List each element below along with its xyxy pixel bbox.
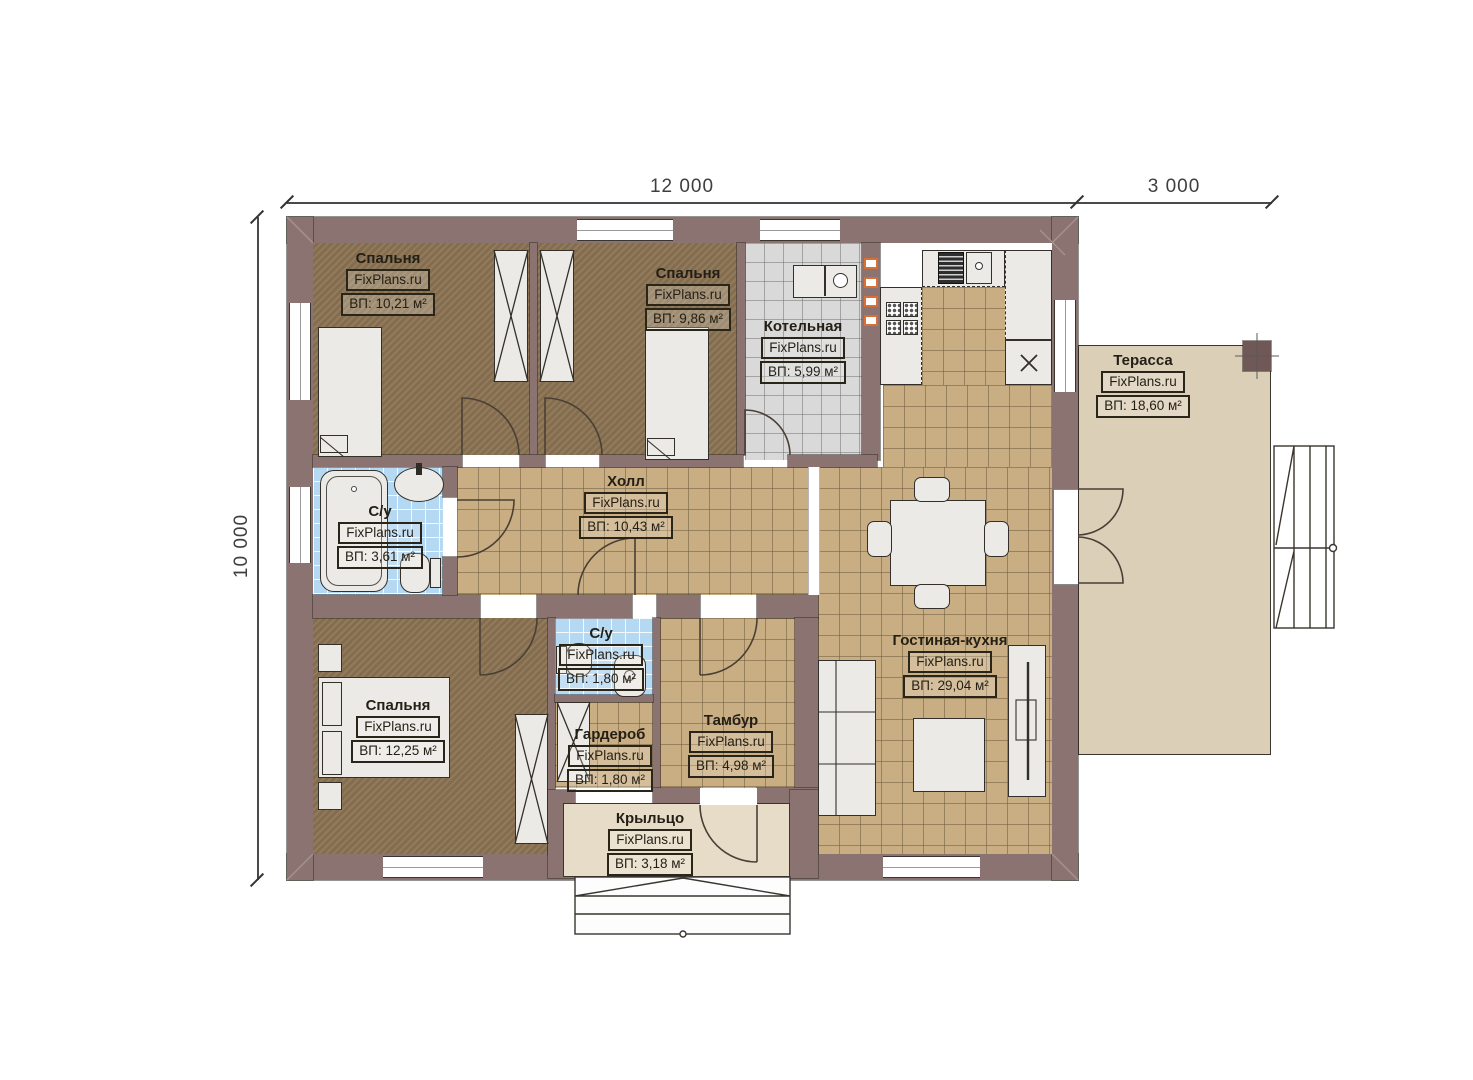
room-label-bedroom-3: Спальня FixPlans.ru ВП: 12,25 м²	[308, 697, 488, 763]
wall-hall-top	[788, 455, 877, 467]
window-boiler	[760, 219, 840, 241]
room-area: ВП: 10,21 м²	[341, 293, 435, 315]
dimension-line-left	[257, 217, 259, 880]
wall-hall-bottom	[537, 595, 632, 618]
closet-bedroom-2	[540, 250, 574, 382]
room-label-terrace: Терасса FixPlans.ru ВП: 18,60 м²	[1053, 352, 1233, 418]
coffee-table	[913, 718, 985, 792]
window-bedroom-3	[383, 856, 483, 878]
room-label-bath-2: С/у FixPlans.ru ВП: 1,80 м²	[511, 625, 691, 691]
room-label-boiler: Котельная FixPlans.ru ВП: 5,99 м²	[713, 318, 893, 384]
nightstand	[318, 782, 342, 810]
dining-chair	[914, 584, 950, 609]
boiler-unit-dial	[833, 273, 848, 288]
room-label-tambour: Тамбур FixPlans.ru ВП: 4,98 м²	[641, 712, 821, 778]
room-name: Спальня	[366, 697, 431, 714]
wall-hall-bottom	[757, 595, 818, 618]
room-label-bedroom-1: Спальня FixPlans.ru ВП: 10,21 м²	[298, 250, 478, 316]
room-name: Гостиная-кухня	[893, 632, 1008, 649]
window-living	[883, 856, 980, 878]
room-label-porch: Крыльцо FixPlans.ru ВП: 3,18 м²	[560, 810, 740, 876]
room-name: Холл	[607, 473, 645, 490]
room-name: Спальня	[656, 265, 721, 282]
room-name: Терасса	[1113, 352, 1172, 369]
dimension-line-top	[287, 202, 1272, 204]
vent-flue	[864, 296, 878, 307]
bed-2-pillow	[647, 438, 675, 456]
watermark: FixPlans.ru	[568, 745, 652, 767]
room-area: ВП: 12,25 м²	[351, 740, 445, 762]
room-label-bath-1: С/у FixPlans.ru ВП: 3,61 м²	[290, 503, 470, 569]
room-name: С/у	[368, 503, 391, 520]
watermark: FixPlans.ru	[1101, 371, 1185, 393]
watermark: FixPlans.ru	[689, 731, 773, 753]
stove-burner	[886, 302, 901, 317]
room-area: ВП: 1,80 м²	[558, 668, 644, 690]
room-name: Гардероб	[575, 726, 646, 743]
room-area: ВП: 29,04 м²	[903, 675, 997, 697]
watermark: FixPlans.ru	[338, 522, 422, 544]
room-area: ВП: 5,99 м²	[760, 361, 846, 383]
wall-bath1-right	[443, 467, 457, 497]
window-bedroom-1	[289, 303, 311, 400]
terrace-stairs	[1274, 446, 1337, 628]
vent-flue	[864, 258, 878, 269]
room-name: Крыльцо	[616, 810, 684, 827]
floor-plan: 12 000 3 000 10 000	[0, 0, 1473, 1080]
room-area: ВП: 18,60 м²	[1096, 395, 1190, 417]
watermark: FixPlans.ru	[646, 284, 730, 306]
watermark: FixPlans.ru	[761, 337, 845, 359]
entry-door-threshold	[700, 788, 757, 805]
dining-table	[890, 500, 986, 586]
closet-bedroom-1	[494, 250, 528, 382]
room-area: ВП: 3,61 м²	[337, 546, 423, 568]
terrace-column	[1243, 341, 1271, 371]
room-name: Котельная	[764, 318, 843, 335]
bathtub-drain	[351, 486, 357, 492]
room-name: С/у	[589, 625, 612, 642]
watermark: FixPlans.ru	[584, 492, 668, 514]
boiler-unit-divider	[824, 266, 826, 296]
stove-burner	[903, 320, 918, 335]
watermark: FixPlans.ru	[908, 651, 992, 673]
bed-1-pillow	[320, 435, 348, 453]
watermark: FixPlans.ru	[559, 644, 643, 666]
hall-living-threshold	[808, 467, 820, 595]
room-area: ВП: 10,43 м²	[579, 516, 673, 538]
stove-burner	[903, 302, 918, 317]
room-area: ВП: 3,18 м²	[607, 853, 693, 875]
window-bedroom-2	[577, 219, 673, 241]
dimension-width-terrace: 3 000	[1124, 176, 1224, 198]
kitchen-floor-lower	[883, 385, 1052, 467]
kitchen-sink-drainer	[938, 252, 964, 284]
vent-flue	[864, 277, 878, 288]
dimension-width-main: 12 000	[632, 176, 732, 198]
wall-hall-bottom	[657, 595, 700, 618]
room-label-living: Гостиная-кухня FixPlans.ru ВП: 29,04 м²	[860, 632, 1040, 698]
dining-chair	[914, 477, 950, 502]
wall-br1-br2	[530, 243, 537, 455]
room-name: Спальня	[356, 250, 421, 267]
watermark: FixPlans.ru	[356, 716, 440, 738]
sink-1-faucet	[416, 463, 422, 475]
room-label-hall: Холл FixPlans.ru ВП: 10,43 м²	[536, 473, 716, 539]
kitchen-sink-faucet	[975, 262, 983, 270]
kitchen-counter-right	[1005, 250, 1052, 340]
outer-wall-top	[287, 217, 1078, 243]
kitchen-floor-aisle	[922, 287, 1005, 385]
kitchen-appliance	[1005, 340, 1052, 385]
dining-chair	[867, 521, 892, 557]
terrace-door-threshold	[1054, 489, 1078, 585]
watermark: FixPlans.ru	[346, 269, 430, 291]
nightstand	[318, 644, 342, 672]
room-name: Тамбур	[704, 712, 758, 729]
room-area: ВП: 4,98 м²	[688, 755, 774, 777]
wall-hall-top	[520, 455, 545, 467]
dining-chair	[984, 521, 1009, 557]
wall-hall-bottom	[313, 595, 480, 618]
wall-porch-right	[790, 790, 818, 878]
watermark: FixPlans.ru	[608, 829, 692, 851]
dimension-height: 10 000	[231, 506, 253, 586]
porch-steps	[575, 877, 790, 937]
